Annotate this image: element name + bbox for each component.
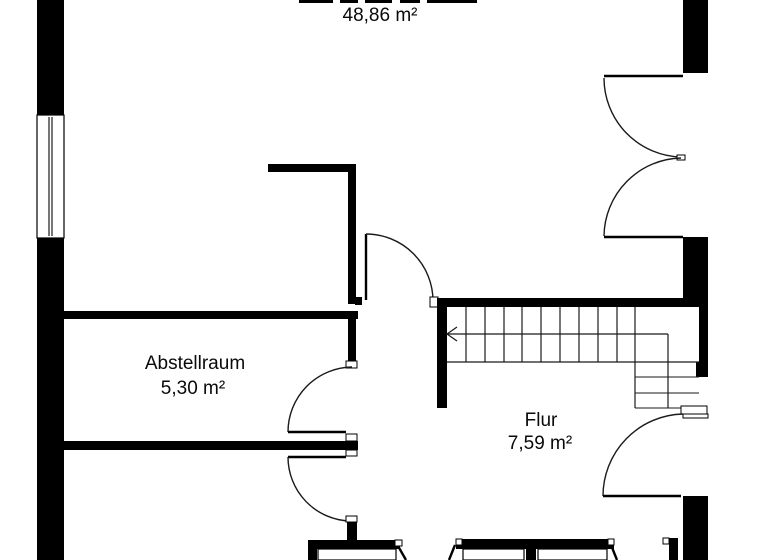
door-sill <box>683 414 708 418</box>
door-swing-arc <box>604 158 681 236</box>
interior-walls-upper <box>268 164 362 305</box>
wall-segment <box>669 538 678 560</box>
door-jamb-stub <box>355 297 362 305</box>
door-jamb <box>346 450 357 456</box>
text-fragment <box>340 0 358 3</box>
wall-segment <box>437 298 700 307</box>
wall-segment <box>683 0 708 73</box>
door-leaf <box>398 546 406 560</box>
door-swing-arc <box>366 234 433 301</box>
abstellraum-area-label: 5,30 m² <box>161 378 225 399</box>
wall-segment <box>60 311 358 319</box>
wall-segment <box>37 238 64 560</box>
abstellraum-walls <box>60 311 358 541</box>
wall-segment <box>60 441 358 450</box>
door-jamb <box>346 516 357 522</box>
main-room-area-label: 48,86 m² <box>343 5 418 26</box>
flur-door <box>603 406 708 496</box>
french-double-door <box>604 76 685 237</box>
door-jamb <box>430 297 438 307</box>
wall-segment <box>348 164 356 304</box>
bottom-cutoff-walls <box>308 538 678 560</box>
right-exterior-wall <box>683 0 708 560</box>
door-jamb <box>346 434 357 441</box>
text-fragment <box>400 0 420 3</box>
wall-segment <box>683 237 708 307</box>
inner-wall-frame <box>318 549 396 560</box>
window <box>37 115 64 238</box>
abstellraum-name-label: Abstellraum <box>145 353 245 374</box>
door-jamb <box>395 540 402 546</box>
wall-segment <box>347 521 357 541</box>
wall-segment <box>348 319 356 367</box>
inner-wall-frame <box>538 549 607 560</box>
floor-plan-drawing: 48,86 m² Abstellraum 5,30 m² Flur 7,59 m… <box>0 0 768 560</box>
wall-segment <box>308 540 400 549</box>
cutoff-text-fragments <box>299 0 477 3</box>
main-room-door <box>366 234 438 307</box>
flur-name-label: Flur <box>525 410 558 431</box>
wall-segment <box>437 298 447 408</box>
door-swing-arc <box>603 414 683 496</box>
text-fragment <box>299 0 333 3</box>
wall-segment <box>683 496 708 560</box>
stairwell-walls <box>437 298 700 408</box>
room-labels: 48,86 m² Abstellraum 5,30 m² Flur 7,59 m… <box>145 5 572 454</box>
staircase <box>447 307 699 408</box>
floor-plan: 48,86 m² Abstellraum 5,30 m² Flur 7,59 m… <box>0 0 768 560</box>
inner-wall-frame <box>463 549 524 560</box>
text-fragment <box>427 0 477 3</box>
door-jamb <box>456 539 462 545</box>
wall-segment <box>526 548 536 560</box>
door-swing-arc <box>288 367 352 432</box>
door-swing-arc <box>604 78 681 157</box>
door-jamb <box>681 406 707 414</box>
wall-segment <box>37 0 64 115</box>
door-jamb <box>663 538 669 544</box>
abstellraum-door <box>288 361 357 441</box>
text-fragment <box>365 0 392 3</box>
lower-room-door <box>288 450 357 522</box>
door-leaf <box>449 545 455 560</box>
wall-segment <box>456 539 614 549</box>
door-swing-arc <box>288 457 350 521</box>
left-exterior-wall <box>37 0 64 560</box>
wall-segment <box>268 164 356 172</box>
door-jamb <box>608 539 614 545</box>
wall-segment <box>696 362 708 377</box>
wall-segment <box>308 548 317 560</box>
flur-area-label: 7,59 m² <box>508 433 572 454</box>
